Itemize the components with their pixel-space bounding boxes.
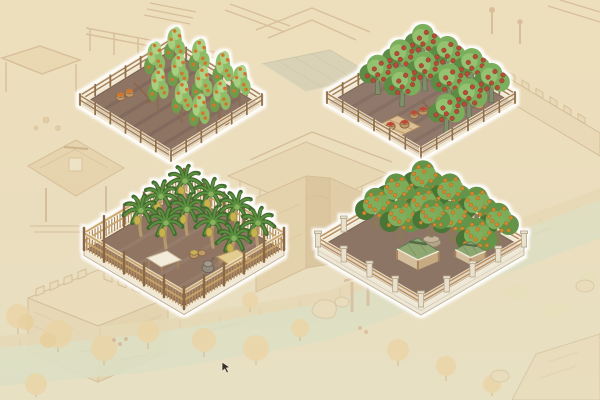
scene-canvas xyxy=(0,0,600,400)
game-viewport xyxy=(0,0,600,400)
